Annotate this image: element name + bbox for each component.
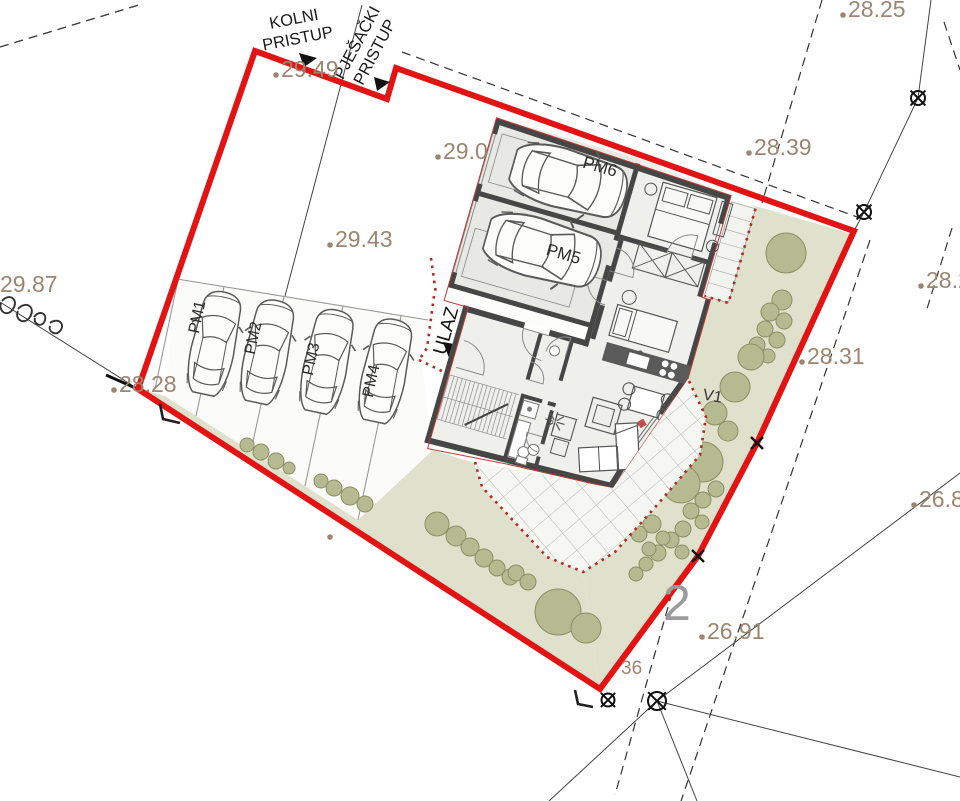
svg-text:28.28: 28.28 <box>119 371 177 397</box>
svg-text:28.31: 28.31 <box>807 343 865 369</box>
svg-text:29.43: 29.43 <box>335 226 393 252</box>
svg-text:2: 2 <box>663 575 691 631</box>
svg-text:29.49: 29.49 <box>281 56 339 82</box>
svg-text:29.87: 29.87 <box>0 271 58 297</box>
svg-text:28.39: 28.39 <box>754 134 812 160</box>
svg-text:36: 36 <box>621 658 642 679</box>
svg-text:28.25: 28.25 <box>848 0 906 22</box>
svg-text:26.91: 26.91 <box>707 618 765 644</box>
svg-text:29.0: 29.0 <box>443 138 488 164</box>
svg-text:V1: V1 <box>701 387 723 407</box>
svg-text:26.8: 26.8 <box>919 486 960 512</box>
svg-text:28.2: 28.2 <box>926 267 960 293</box>
